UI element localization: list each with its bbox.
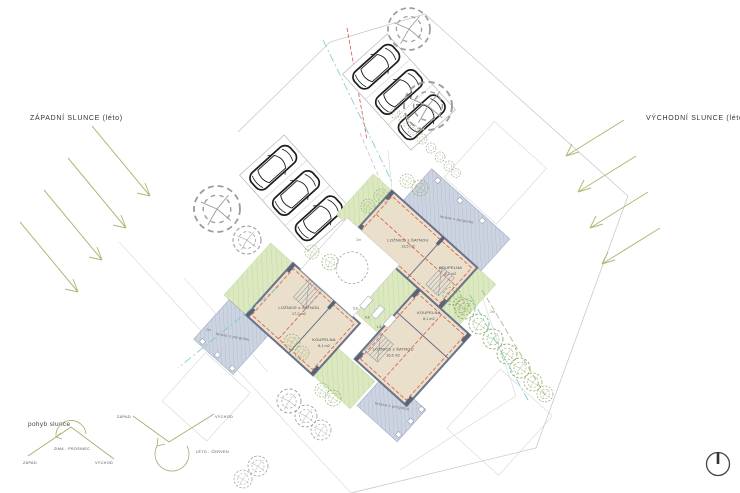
svg-text:LOŽNICE s ŠATNOU: LOŽNICE s ŠATNOU	[387, 237, 428, 242]
tree-icon	[277, 389, 301, 413]
svg-text:16,6 m2: 16,6 m2	[386, 354, 400, 358]
sun-path-diagram-summer: ZÁPAD VÝCHOD LÉTO - ČERVEN	[117, 414, 233, 471]
stone-dim-label: 4,8	[365, 316, 370, 320]
svg-text:8,1 m2: 8,1 m2	[423, 317, 435, 321]
site-plan-canvas: 5,8 4,8 4,8 LOŽNICE s ŠATNOU 13,5 m2 KOU…	[0, 0, 740, 493]
winter-east-label: VÝCHOD	[95, 461, 113, 465]
north-arrow-icon	[707, 453, 730, 476]
svg-text:13,5 m2: 13,5 m2	[401, 244, 415, 248]
west-sun-label: ZÁPADNÍ SLUNCE (léto)	[30, 113, 123, 122]
svg-text:LOŽNICE s ŠATNOU: LOŽNICE s ŠATNOU	[278, 305, 319, 310]
winter-west-label: ZÁPAD	[23, 461, 37, 465]
offset-dim-left: 2m	[206, 328, 211, 332]
winter-season-label: ZIMA - PROSINEC	[54, 447, 91, 451]
svg-text:LOŽNICE s ŠATNOU: LOŽNICE s ŠATNOU	[373, 347, 414, 352]
summer-season-label: LÉTO - ČERVEN	[196, 449, 229, 454]
site-plan-drawing: 5,8 4,8 4,8 LOŽNICE s ŠATNOU 13,5 m2 KOU…	[0, 0, 740, 493]
east-sun-label: VÝCHODNÍ SLUNCE (léto)	[646, 113, 740, 122]
offset-dim-top: 2m	[356, 238, 361, 242]
svg-text:KOUPELNA: KOUPELNA	[312, 337, 336, 342]
svg-text:KOUPELNA: KOUPELNA	[439, 265, 463, 270]
parking-bay-upper	[343, 34, 456, 150]
summer-east-label: VÝCHOD	[215, 415, 233, 419]
east-sun-arrows	[566, 120, 660, 264]
svg-text:5,7 m2: 5,7 m2	[445, 272, 457, 276]
svg-text:KOUPELNA: KOUPELNA	[417, 310, 441, 315]
tree-icon	[234, 470, 252, 488]
west-sun-arrows	[20, 126, 150, 292]
svg-text:17,2 m2: 17,2 m2	[292, 312, 306, 316]
tree-icon	[194, 186, 240, 232]
svg-text:8,1 m2: 8,1 m2	[318, 344, 330, 348]
tree-icon	[311, 420, 331, 440]
tree-icon	[233, 226, 261, 254]
stone-dim-label: 4,8	[377, 325, 382, 329]
offset-dim-right: 2m	[490, 310, 495, 314]
stone-dim-label: 5,8	[353, 306, 358, 310]
sun-path-diagram-winter: pohyb slunce ZÁPAD VÝCHOD ZIMA - PROSINE…	[23, 420, 114, 465]
summer-west-label: ZÁPAD	[117, 415, 131, 419]
tree-icon	[248, 456, 268, 476]
tree-icon	[295, 405, 317, 427]
